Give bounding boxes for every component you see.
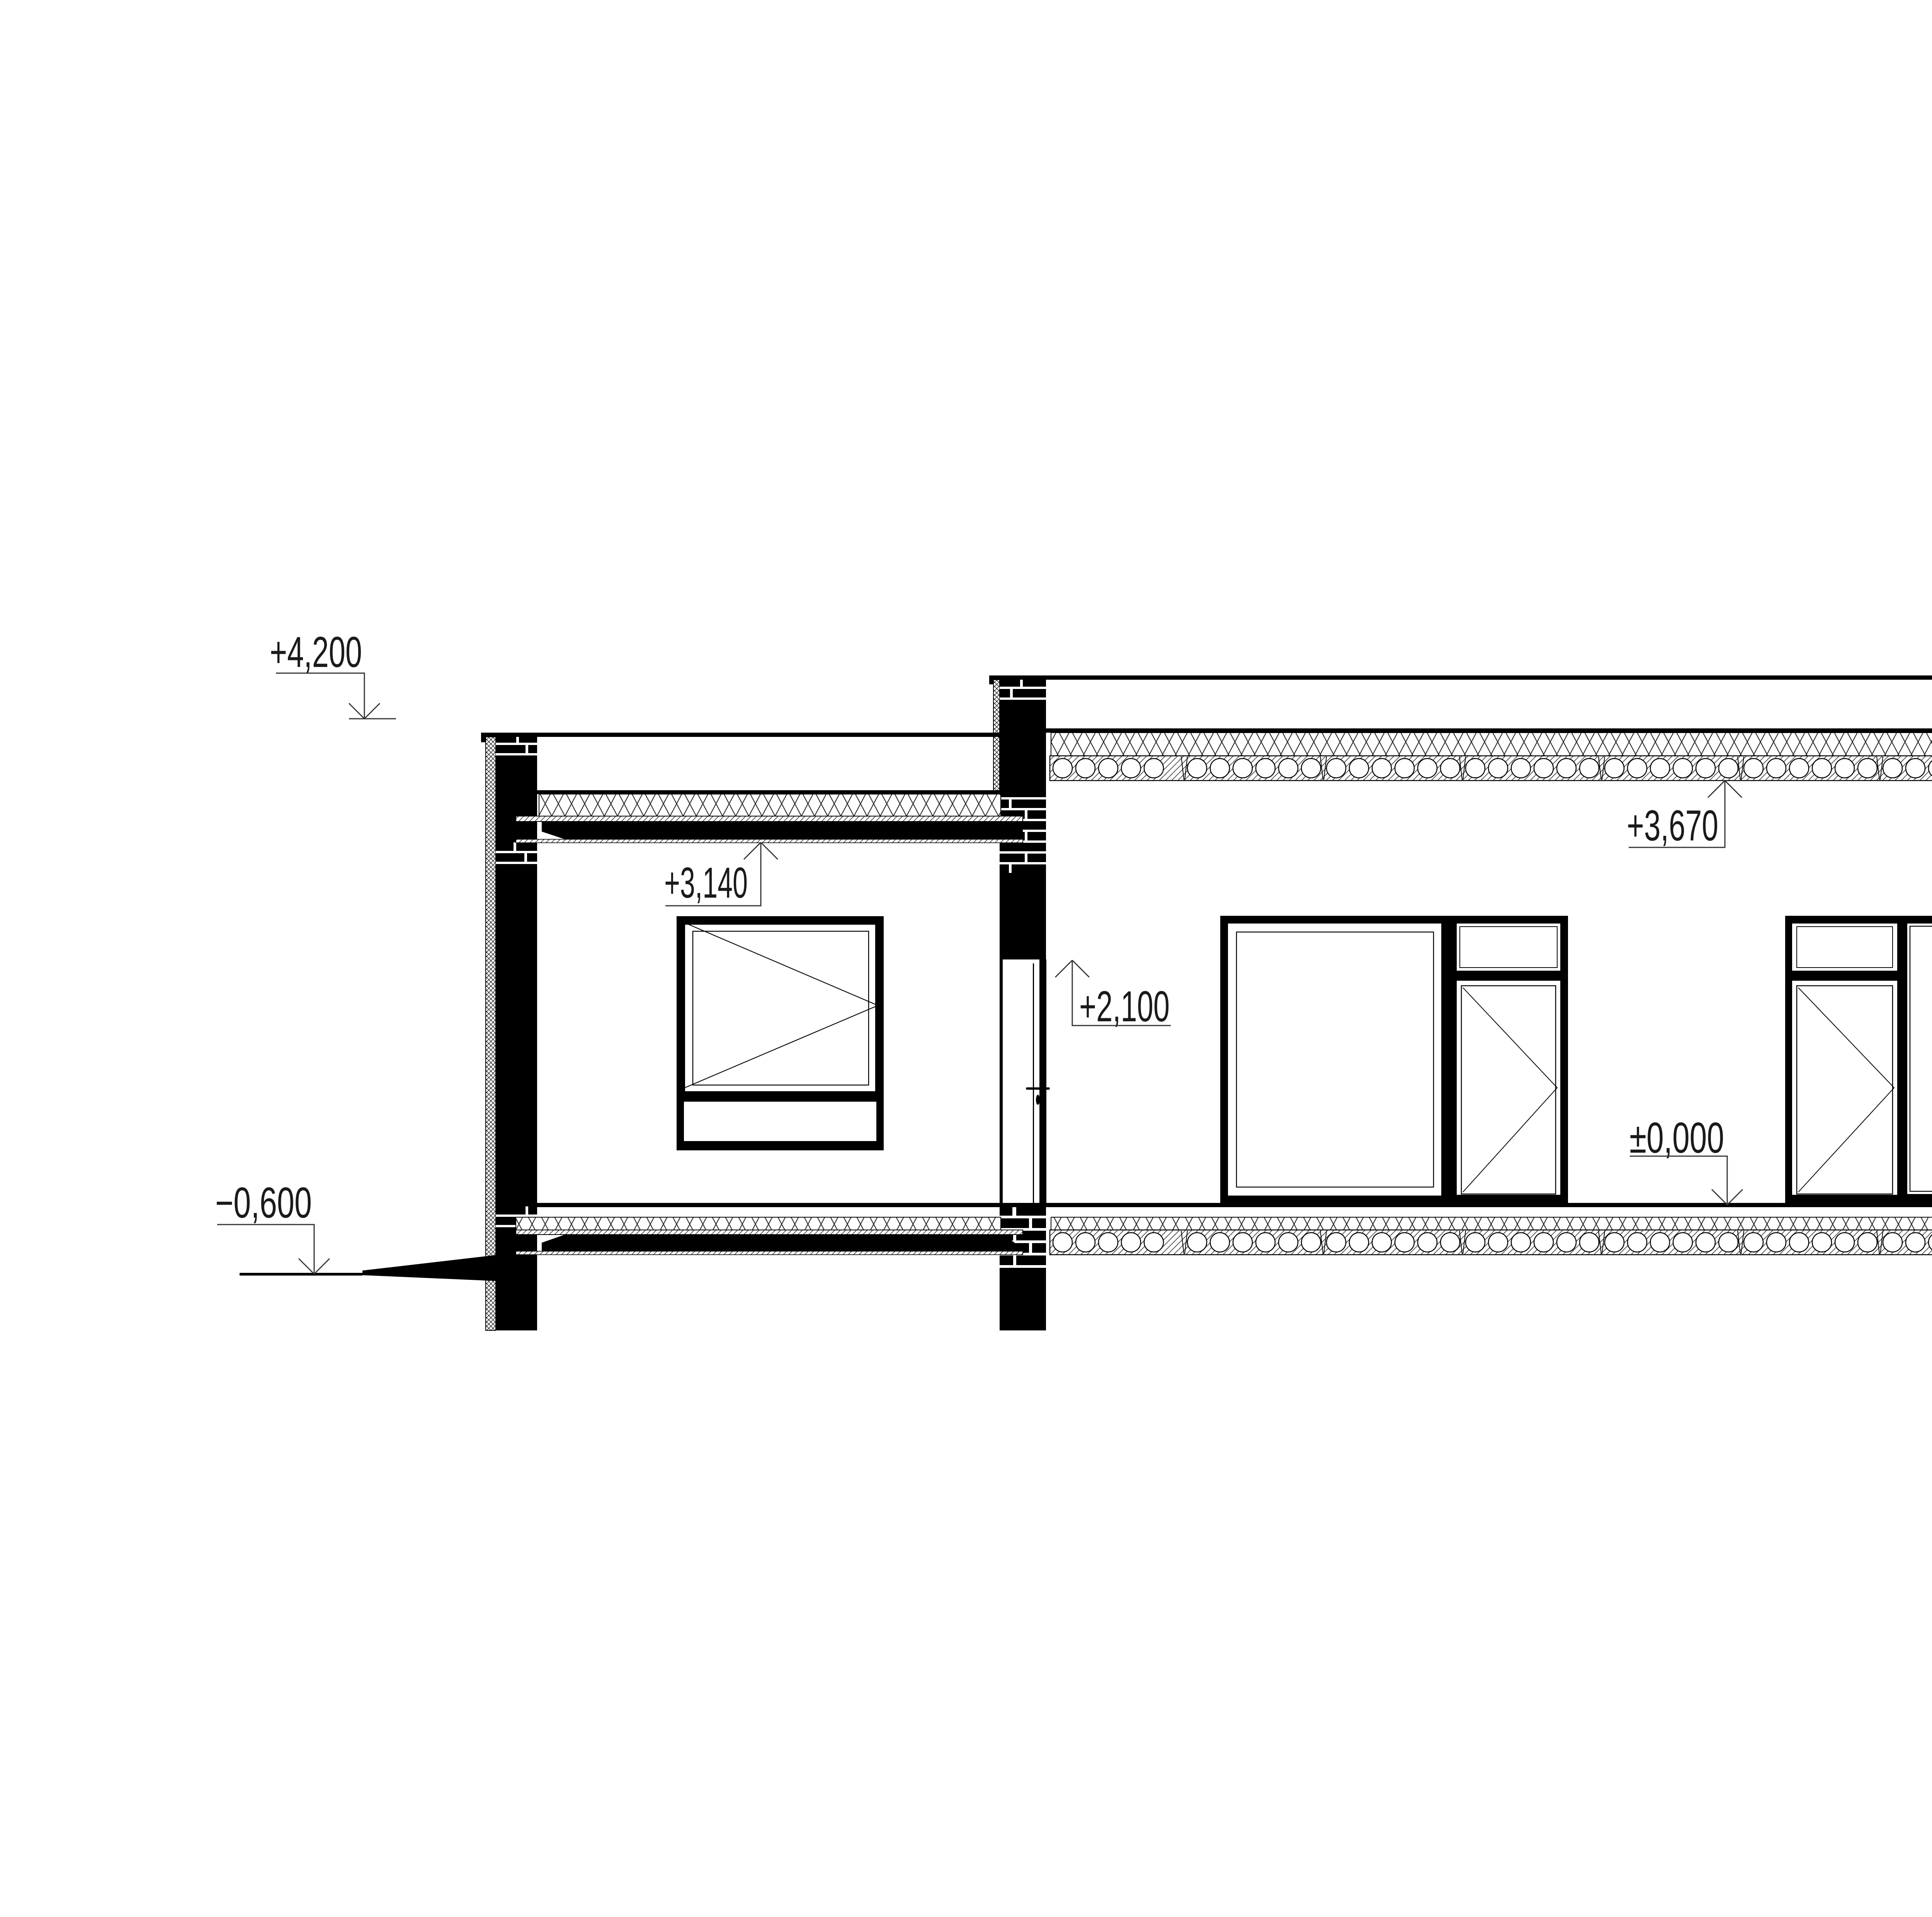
svg-text:+2,100: +2,100 bbox=[1079, 982, 1170, 1031]
svg-text:+4,200: +4,200 bbox=[270, 628, 362, 676]
svg-text:+3,140: +3,140 bbox=[664, 859, 748, 907]
svg-text:+3,670: +3,670 bbox=[1627, 801, 1718, 850]
svg-text:±0,000: ±0,000 bbox=[1629, 1114, 1724, 1162]
svg-text:−0,600: −0,600 bbox=[215, 1179, 312, 1227]
